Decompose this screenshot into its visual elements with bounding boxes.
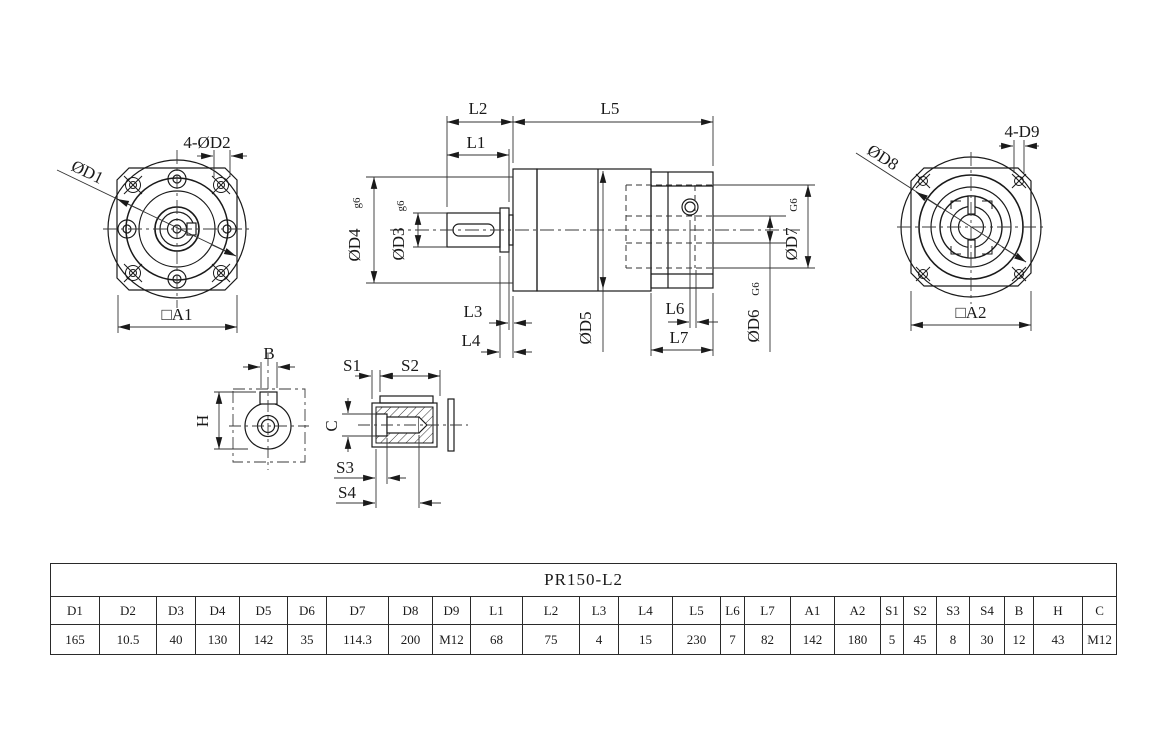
label-d3: ØD3 (389, 227, 408, 260)
detail-b-dim (243, 362, 295, 388)
dim-value-L2: 75 (523, 625, 580, 655)
dim-value-C: M12 (1083, 625, 1117, 655)
dim-value-L3: 4 (580, 625, 619, 655)
table-value-row: 16510.54013014235114.3200M12687541523078… (51, 625, 1117, 655)
label-d6-fit: G6 (750, 282, 762, 296)
table-title-row: PR150-L2 (51, 564, 1117, 597)
dim-header-D1: D1 (51, 597, 100, 625)
label-l1: L1 (467, 133, 486, 152)
label-b: B (263, 344, 274, 363)
label-s3: S3 (336, 458, 354, 477)
dim-header-D5: D5 (240, 597, 288, 625)
detail-key (260, 392, 277, 404)
dim-value-L1: 68 (471, 625, 523, 655)
dim-header-S2: S2 (904, 597, 937, 625)
label-l7: L7 (670, 328, 689, 347)
dim-value-S2: 45 (904, 625, 937, 655)
label-d7-fit: G6 (788, 198, 800, 212)
front-d1-dim (57, 170, 236, 256)
dim-header-D6: D6 (288, 597, 327, 625)
label-d6: ØD6 (744, 309, 763, 342)
rear-clamp-slot-top (968, 196, 975, 214)
dim-value-D3: 40 (157, 625, 196, 655)
dim-header-D9: D9 (433, 597, 471, 625)
label-d1: ØD1 (68, 156, 106, 187)
label-d4: ØD4 (345, 228, 364, 262)
label-d9-holes: 4-D9 (1005, 122, 1040, 141)
dim-value-D8: 200 (389, 625, 433, 655)
dim-value-D7: 114.3 (327, 625, 389, 655)
technical-drawing-page: ØD1 4-ØD2 □A1 (0, 0, 1164, 740)
dim-value-S3: 8 (937, 625, 970, 655)
dim-value-L4: 15 (619, 625, 673, 655)
dim-header-L7: L7 (745, 597, 791, 625)
dim-header-D8: D8 (389, 597, 433, 625)
label-s1: S1 (343, 356, 361, 375)
dim-value-S4: 30 (970, 625, 1005, 655)
dim-value-D4: 130 (196, 625, 240, 655)
dim-header-B: B (1005, 597, 1034, 625)
dim-value-B: 12 (1005, 625, 1034, 655)
dim-value-D2: 10.5 (100, 625, 157, 655)
dim-header-D7: D7 (327, 597, 389, 625)
dim-header-L3: L3 (580, 597, 619, 625)
label-s4: S4 (338, 483, 356, 502)
dim-value-D5: 142 (240, 625, 288, 655)
side-hidden-bores (626, 185, 713, 268)
rear-d8-dim (856, 153, 1026, 262)
label-d7: ØD7 (782, 227, 801, 261)
rear-clamp-slot-bottom (968, 240, 975, 258)
dim-value-L5: 230 (673, 625, 721, 655)
dim-header-D3: D3 (157, 597, 196, 625)
dim-header-L6: L6 (721, 597, 745, 625)
dim-value-A2: 180 (835, 625, 881, 655)
label-c: C (322, 420, 341, 431)
detail-centerlines (229, 354, 309, 470)
label-l6: L6 (666, 299, 685, 318)
dim-header-L5: L5 (673, 597, 721, 625)
dim-value-L6: 7 (721, 625, 745, 655)
dimension-table: PR150-L2 D1D2D3D4D5D6D7D8D9L1L2L3L4L5L6L… (50, 563, 1113, 655)
dim-value-H: 43 (1034, 625, 1083, 655)
dim-header-C: C (1083, 597, 1117, 625)
table-header-row: D1D2D3D4D5D6D7D8D9L1L2L3L4L5L6L7A1A2S1S2… (51, 597, 1117, 625)
dim-header-A1: A1 (791, 597, 835, 625)
label-d2-holes: 4-ØD2 (183, 133, 230, 152)
dim-value-S1: 5 (881, 625, 904, 655)
label-h: H (193, 415, 212, 427)
dim-value-A1: 142 (791, 625, 835, 655)
front-d2-dim (197, 150, 247, 177)
dim-header-D2: D2 (100, 597, 157, 625)
dim-header-S3: S3 (937, 597, 970, 625)
front-centerlines (103, 150, 251, 308)
label-d3-fit: g6 (395, 200, 407, 212)
dim-header-L1: L1 (471, 597, 523, 625)
dim-value-D9: M12 (433, 625, 471, 655)
label-a1: □A1 (161, 305, 192, 324)
label-l5: L5 (601, 99, 620, 118)
label-s2: S2 (401, 356, 419, 375)
dim-header-A2: A2 (835, 597, 881, 625)
section-key-tab (380, 396, 433, 403)
dim-header-D4: D4 (196, 597, 240, 625)
dim-value-D1: 165 (51, 625, 100, 655)
shaft-end-detail (214, 354, 309, 470)
dim-header-S1: S1 (881, 597, 904, 625)
label-d5: ØD5 (576, 311, 595, 344)
dim-value-L7: 82 (745, 625, 791, 655)
dim-header-S4: S4 (970, 597, 1005, 625)
dim-header-H: H (1034, 597, 1083, 625)
label-d4-fit: g6 (351, 197, 363, 209)
label-l2: L2 (469, 99, 488, 118)
label-a2: □A2 (955, 303, 986, 322)
dim-value-D6: 35 (288, 625, 327, 655)
model-title: PR150-L2 (51, 564, 1117, 597)
label-l3: L3 (464, 302, 483, 321)
dim-header-L2: L2 (523, 597, 580, 625)
dim-header-L4: L4 (619, 597, 673, 625)
label-l4: L4 (462, 331, 481, 350)
label-d8: ØD8 (864, 140, 902, 174)
